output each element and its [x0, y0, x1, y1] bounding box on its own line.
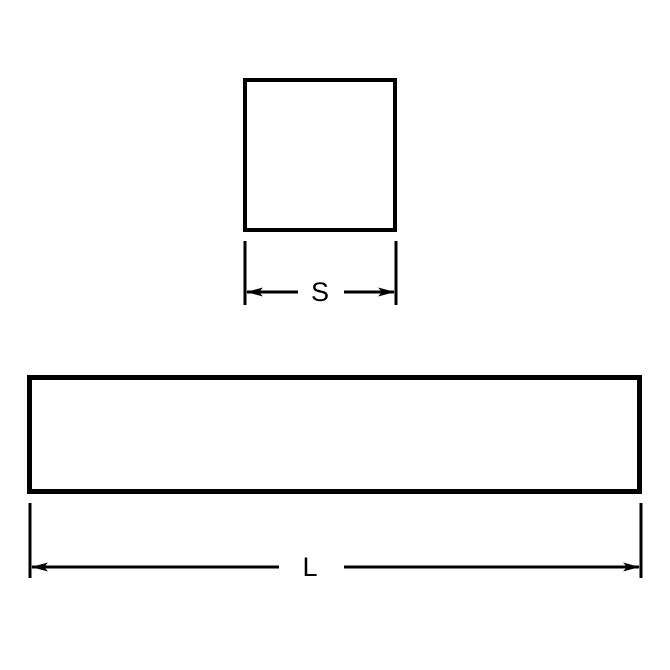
length-view: L — [30, 378, 642, 583]
dimension-drawing: S L — [0, 0, 670, 670]
technical-drawing-canvas: S L — [0, 0, 670, 670]
length-bar-outline — [30, 378, 640, 492]
square-cross-section-outline — [245, 80, 395, 230]
s-dimension-label: S — [311, 277, 329, 307]
cross-section-view: S — [245, 80, 396, 307]
l-dimension-label: L — [302, 552, 317, 582]
